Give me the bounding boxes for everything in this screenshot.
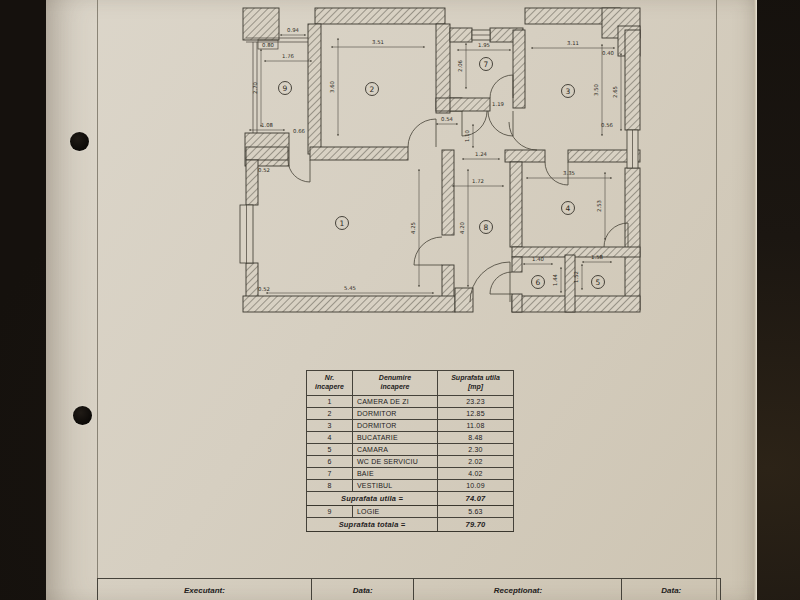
dimension-label: 1.58 (591, 254, 603, 260)
drawing-frame-line-left (97, 0, 98, 600)
table-row: 5CAMARA2.30 (307, 444, 514, 456)
paper-edge (754, 0, 757, 600)
dimension-label: 0.56 (601, 122, 613, 128)
row-number: 9 (307, 506, 353, 518)
room-number: 6 (536, 278, 541, 287)
dimension-label: 1.52 (573, 271, 579, 283)
subtotal-label: Suprafata utila = (307, 492, 438, 506)
table-row: 8VESTIBUL10.09 (307, 480, 514, 492)
dimension-label: 5.45 (344, 285, 356, 291)
total-value: 79.70 (438, 518, 514, 532)
room-name: CAMERA DE ZI (353, 396, 438, 408)
total-row: Suprafata totala = 79.70 (307, 518, 514, 532)
room-area: 5.63 (438, 506, 514, 518)
footer-receptionat: Receptionat: (414, 579, 622, 600)
dimension-label: 0.94 (287, 27, 299, 33)
dimension-label: 3.50 (593, 83, 599, 95)
dimension-label: 1.44 (552, 273, 558, 285)
row-number: 4 (307, 432, 353, 444)
table-row: 7BAIE4.02 (307, 468, 514, 480)
room-area: 10.09 (438, 480, 514, 492)
room-number: 7 (484, 60, 489, 69)
room-number: 2 (370, 85, 375, 94)
dimension-label: 1.10 (464, 129, 470, 141)
footer-data-2: Data: (622, 579, 720, 600)
row-number: 5 (307, 444, 353, 456)
table-header: Nr.incapere Denumireincapere Suprafata u… (307, 371, 514, 396)
summary-rows: Suprafata utila = 74.07 9 LOGIE 5.63 Sup… (307, 492, 514, 532)
dimension-label: 0.52 (258, 286, 270, 292)
room-area: 12.85 (438, 408, 514, 420)
room-name: BAIE (353, 468, 438, 480)
row-number: 3 (307, 420, 353, 432)
room-number: 4 (566, 204, 571, 213)
dimension-label: 3.11 (567, 40, 579, 46)
footer-data-2-label: Data: (661, 586, 681, 595)
room-name: CAMARA (353, 444, 438, 456)
floor-plan-drawing: 0.940.801.762.701.080.660.523.513.601.95… (230, 0, 650, 335)
header-suprafata: Suprafata utila[mp] (438, 371, 514, 396)
table-row: 3DORMITOR11.08 (307, 420, 514, 432)
table-row: 6WC DE SERVICIU2.02 (307, 456, 514, 468)
room-area: 8.48 (438, 432, 514, 444)
row-number: 2 (307, 408, 353, 420)
room-number: 8 (484, 223, 489, 232)
dimension-label: 0.40 (602, 50, 614, 56)
room-number: 9 (283, 84, 288, 93)
dimension-label: 2.65 (612, 86, 618, 98)
dimension-label: 0.66 (293, 128, 305, 134)
dimension-label: 4.20 (459, 221, 465, 233)
row-number: 8 (307, 480, 353, 492)
hole-punch-icon (70, 132, 89, 151)
dimension-label: 2.06 (457, 59, 463, 71)
room-area: 23.23 (438, 396, 514, 408)
table-row: 4BUCATARIE8.48 (307, 432, 514, 444)
dimension-label: 1.76 (282, 53, 294, 59)
dimension-label: 2.70 (252, 81, 258, 93)
room-name: BUCATARIE (353, 432, 438, 444)
dimension-label: 1.40 (532, 256, 544, 262)
footer-executant: Executant: (98, 579, 312, 600)
room-name: VESTIBUL (353, 480, 438, 492)
dimension-label: 2.53 (596, 200, 602, 212)
room-area: 11.08 (438, 420, 514, 432)
table-row: 1CAMERA DE ZI23.23 (307, 396, 514, 408)
dimension-label: 1.08 (261, 122, 273, 128)
drawing-frame-line-right (716, 0, 717, 600)
footer-data-1: Data: (312, 579, 415, 600)
dimension-label: 0.54 (441, 116, 453, 122)
room-area: 2.30 (438, 444, 514, 456)
photo-background: { "table": { "headers": { "nr_line1": "N… (0, 0, 800, 600)
dimension-label: 1.24 (475, 151, 487, 157)
hole-punch-icon (73, 406, 92, 425)
total-label: Suprafata totala = (307, 518, 438, 532)
row-number: 7 (307, 468, 353, 480)
subtotal-row: Suprafata utila = 74.07 (307, 492, 514, 506)
subtotal-value: 74.07 (438, 492, 514, 506)
footer-data-1-label: Data: (353, 586, 373, 595)
room-area: 4.02 (438, 468, 514, 480)
room-name: WC DE SERVICIU (353, 456, 438, 468)
header-denumire: Denumireincapere (353, 371, 438, 396)
room-number: 5 (596, 278, 601, 287)
room-number: 3 (566, 87, 571, 96)
table-row: 9 LOGIE 5.63 (307, 506, 514, 518)
header-nr: Nr.incapere (307, 371, 353, 396)
dimension-label: 3.51 (372, 39, 384, 45)
dimension-label: 0.80 (262, 42, 274, 48)
dimension-label: 1.19 (492, 101, 504, 107)
dimension-label: 1.95 (478, 42, 490, 48)
dimension-label: 1.72 (472, 178, 484, 184)
footer-executant-label: Executant: (184, 586, 225, 595)
dimension-label: 3.60 (329, 80, 335, 92)
room-rows: 1CAMERA DE ZI23.232DORMITOR12.853DORMITO… (307, 396, 514, 492)
title-block-footer: Executant: Data: Receptionat: Data: (97, 578, 721, 600)
table-row: 2DORMITOR12.85 (307, 408, 514, 420)
room-area: 2.02 (438, 456, 514, 468)
room-area-table: Nr.incapere Denumireincapere Suprafata u… (306, 370, 514, 532)
dimension-label: 3.35 (563, 170, 575, 176)
dimension-label: 0.52 (258, 167, 270, 173)
plan-walls (243, 8, 640, 312)
room-name: DORMITOR (353, 408, 438, 420)
dimension-label: 4.25 (410, 222, 416, 234)
row-number: 6 (307, 456, 353, 468)
row-number: 1 (307, 396, 353, 408)
room-name: LOGIE (353, 506, 438, 518)
room-number: 1 (340, 219, 345, 228)
room-name: DORMITOR (353, 420, 438, 432)
footer-receptionat-label: Receptionat: (494, 586, 542, 595)
